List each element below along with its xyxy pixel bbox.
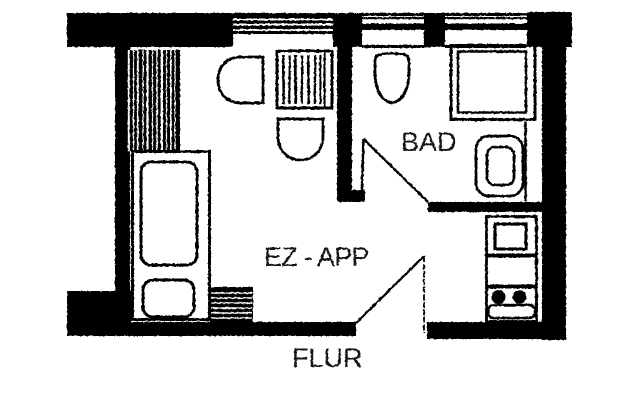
svg-text:BAD: BAD [401,127,457,157]
svg-text:EZ - APP: EZ - APP [264,242,369,272]
svg-text:FLUR: FLUR [292,343,363,373]
